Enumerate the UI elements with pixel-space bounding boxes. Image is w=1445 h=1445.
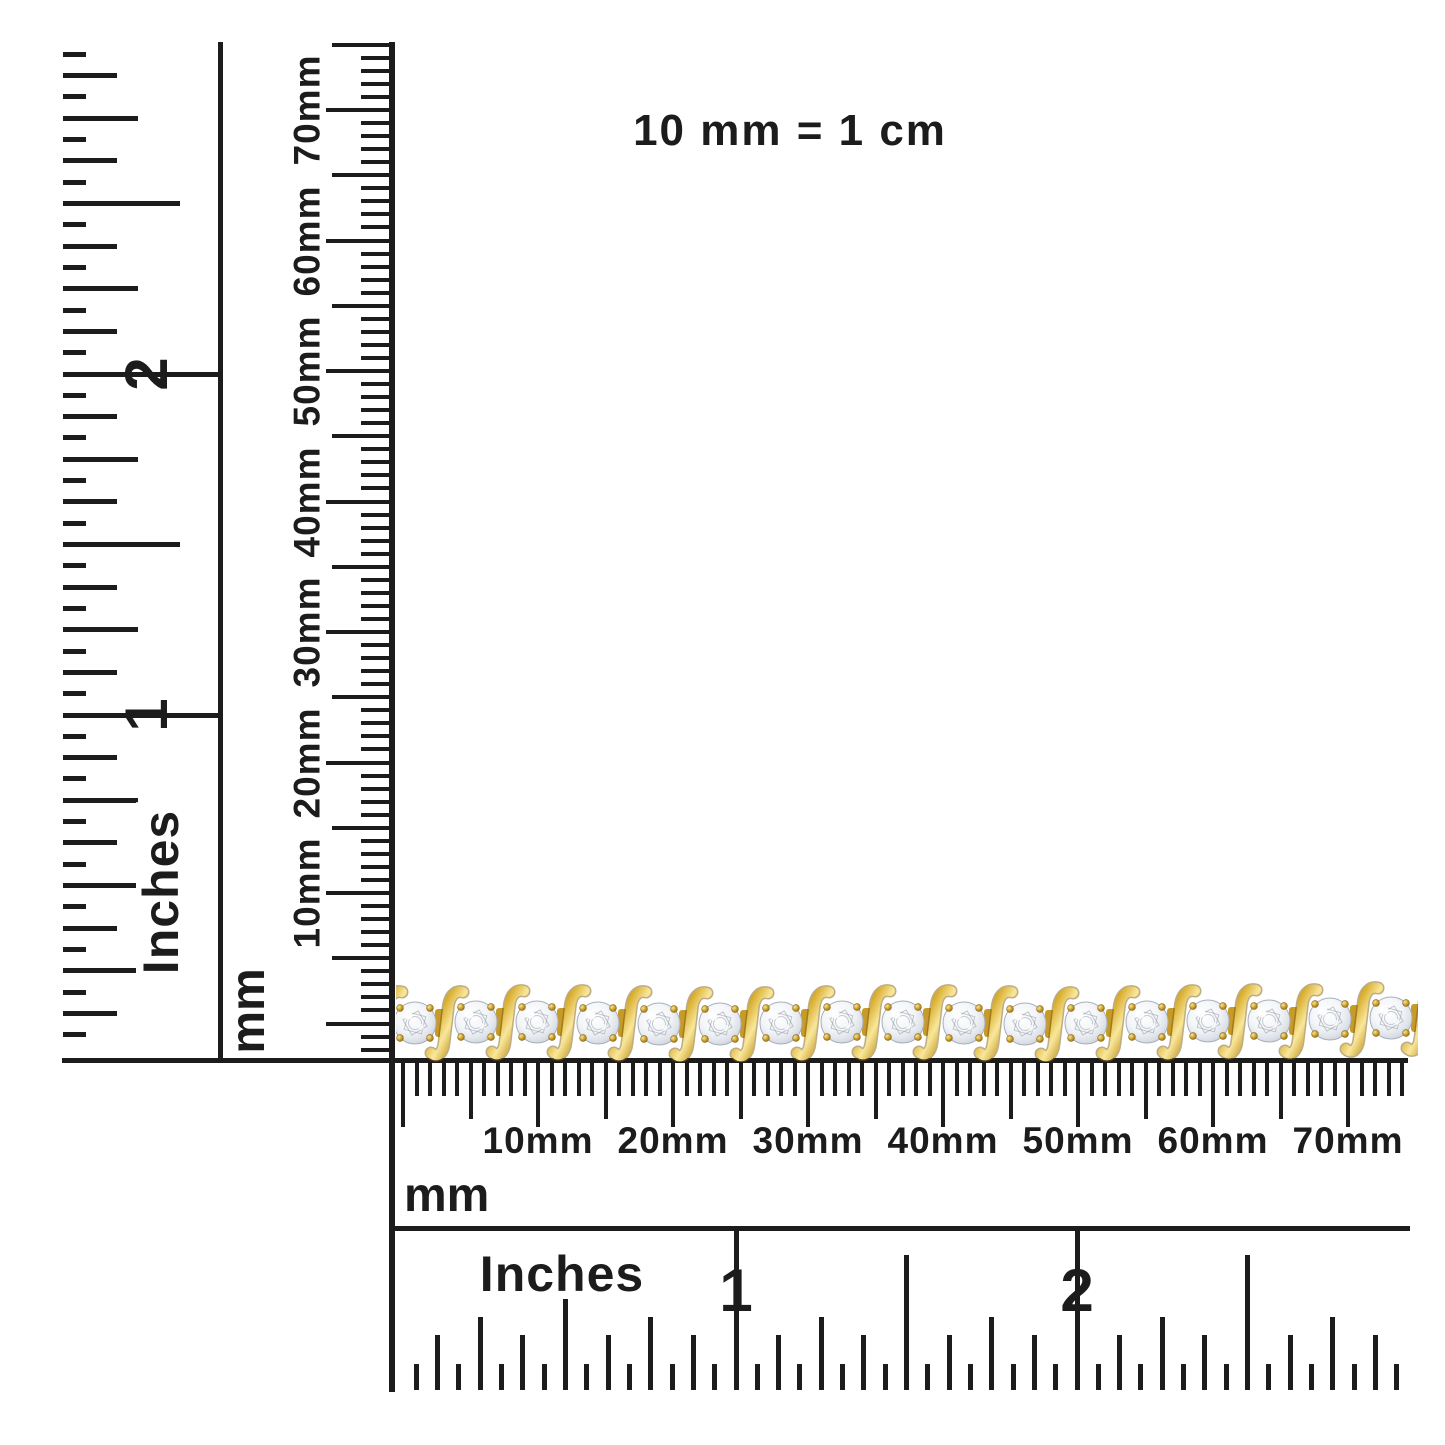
inch-tick bbox=[63, 691, 86, 696]
inch-tick bbox=[63, 649, 86, 654]
inch-number-label: 1 bbox=[117, 698, 177, 731]
scale-note: 10 mm = 1 cm bbox=[633, 109, 947, 153]
mm-tick bbox=[739, 1063, 743, 1119]
mm-tick bbox=[361, 330, 389, 334]
mm-tick bbox=[415, 1063, 419, 1096]
inch-tick bbox=[1053, 1364, 1058, 1390]
mm-tick bbox=[752, 1063, 756, 1096]
inch-tick bbox=[63, 670, 117, 675]
bracelet-link bbox=[1248, 990, 1317, 1054]
inch-tick bbox=[63, 329, 117, 334]
mm-tick bbox=[1117, 1063, 1121, 1096]
inch-tick bbox=[542, 1364, 547, 1390]
mm-tick-label: 50mm bbox=[1023, 1122, 1134, 1159]
mm-tick bbox=[523, 1063, 527, 1096]
mm-tick bbox=[1306, 1063, 1310, 1096]
inch-tick bbox=[63, 180, 86, 185]
mm-tick bbox=[361, 969, 389, 973]
product-measurement-image: 10 mm = 1 cm Inches mm mm Inches 1210mm2… bbox=[0, 0, 1445, 1445]
mm-tick bbox=[860, 1063, 864, 1096]
bracelet-link bbox=[1065, 992, 1134, 1056]
mm-tick bbox=[361, 486, 389, 490]
mm-tick bbox=[1157, 1063, 1161, 1096]
mm-tick bbox=[1265, 1063, 1269, 1096]
mm-tick bbox=[1144, 1063, 1148, 1119]
inch-tick bbox=[63, 990, 86, 995]
mm-tick bbox=[361, 930, 389, 934]
inch-tick bbox=[606, 1335, 611, 1390]
mm-tick bbox=[401, 1063, 405, 1127]
inch-tick bbox=[627, 1364, 632, 1390]
mm-tick bbox=[496, 1063, 500, 1096]
inch-tick bbox=[63, 116, 138, 121]
mm-tick bbox=[1360, 1063, 1364, 1096]
mm-tick-label: 60mm bbox=[1158, 1122, 1269, 1159]
mm-tick bbox=[361, 813, 389, 817]
mm-tick bbox=[1346, 1063, 1350, 1127]
mm-tick-label: 40mm bbox=[888, 1122, 999, 1159]
inch-tick bbox=[63, 478, 86, 483]
inch-tick bbox=[776, 1335, 781, 1390]
mm-tick bbox=[1279, 1063, 1283, 1119]
mm-tick bbox=[361, 617, 389, 621]
mm-tick bbox=[941, 1063, 945, 1127]
bracelet-link bbox=[638, 993, 707, 1057]
inch-tick bbox=[63, 393, 86, 398]
mm-tick bbox=[361, 186, 389, 190]
mm-tick bbox=[847, 1063, 851, 1096]
inch-tick bbox=[63, 755, 117, 760]
mm-tick bbox=[1171, 1063, 1175, 1096]
mm-tick bbox=[482, 1063, 486, 1096]
mm-tick bbox=[914, 1063, 918, 1096]
bracelet-link bbox=[1126, 991, 1195, 1055]
inch-tick bbox=[63, 606, 86, 611]
inch-tick bbox=[819, 1317, 824, 1390]
mm-tick bbox=[361, 917, 389, 921]
inch-tick bbox=[755, 1364, 760, 1390]
mm-tick bbox=[361, 56, 389, 60]
mm-tick bbox=[326, 1022, 389, 1026]
inch-tick bbox=[499, 1364, 504, 1390]
mm-tick bbox=[332, 565, 389, 569]
inch-tick bbox=[63, 563, 86, 568]
mm-tick bbox=[361, 473, 389, 477]
inch-number-label: 2 bbox=[1060, 1261, 1093, 1321]
inch-tick bbox=[63, 1011, 117, 1016]
mm-tick bbox=[361, 1035, 389, 1039]
mm-tick bbox=[332, 43, 389, 47]
mm-tick bbox=[361, 721, 389, 725]
vertical-frame-line bbox=[389, 42, 395, 1392]
inch-tick bbox=[478, 1317, 483, 1390]
mm-tick bbox=[1103, 1063, 1107, 1096]
mm-tick bbox=[685, 1063, 689, 1096]
inch-tick bbox=[63, 862, 86, 867]
bracelet-link bbox=[1370, 987, 1418, 1051]
mm-tick bbox=[361, 656, 389, 660]
mm-tick bbox=[1036, 1063, 1040, 1096]
inch-tick bbox=[63, 840, 117, 845]
left-inches-ruler-unit-label: Inches bbox=[136, 802, 186, 982]
bracelet-link bbox=[699, 993, 768, 1057]
mm-tick bbox=[361, 225, 389, 229]
inch-tick bbox=[63, 1032, 86, 1037]
inch-tick bbox=[584, 1364, 589, 1390]
mm-tick bbox=[712, 1063, 716, 1096]
inch-tick bbox=[63, 201, 180, 206]
mm-tick bbox=[604, 1063, 608, 1119]
mm-tick bbox=[887, 1063, 891, 1096]
mm-tick bbox=[644, 1063, 648, 1096]
mm-tick-label: 70mm bbox=[1293, 1122, 1404, 1159]
mm-tick bbox=[332, 956, 389, 960]
inch-tick bbox=[883, 1364, 888, 1390]
mm-tick bbox=[326, 891, 389, 895]
bracelet-link bbox=[455, 991, 524, 1055]
mm-tick bbox=[361, 147, 389, 151]
mm-tick-label: 20mm bbox=[289, 707, 326, 818]
inch-tick bbox=[1245, 1255, 1250, 1390]
bracelet-link bbox=[943, 992, 1012, 1056]
inch-tick bbox=[1138, 1364, 1143, 1390]
inch-tick bbox=[691, 1335, 696, 1390]
inch-tick bbox=[1202, 1335, 1207, 1390]
mm-tick bbox=[332, 826, 389, 830]
bracelet-link bbox=[1309, 988, 1378, 1052]
mm-tick bbox=[361, 1048, 389, 1052]
mm-tick bbox=[326, 239, 389, 243]
mm-tick bbox=[793, 1063, 797, 1096]
mm-tick bbox=[361, 852, 389, 856]
inch-tick bbox=[1032, 1335, 1037, 1390]
mm-tick bbox=[361, 212, 389, 216]
mm-tick bbox=[779, 1063, 783, 1096]
inch-tick bbox=[63, 137, 86, 142]
mm-tick bbox=[1373, 1063, 1377, 1096]
inch-tick bbox=[925, 1364, 930, 1390]
mm-tick bbox=[955, 1063, 959, 1096]
mm-tick bbox=[361, 252, 389, 256]
mm-tick bbox=[1198, 1063, 1202, 1096]
inch-tick bbox=[63, 52, 86, 57]
inch-tick bbox=[840, 1364, 845, 1390]
inch-tick bbox=[63, 926, 117, 931]
mm-tick bbox=[326, 761, 389, 765]
mm-tick bbox=[361, 800, 389, 804]
inch-tick bbox=[63, 585, 117, 590]
mm-tick bbox=[1225, 1063, 1229, 1096]
mm-tick bbox=[1400, 1063, 1404, 1096]
bracelet-link bbox=[516, 991, 585, 1055]
mm-tick bbox=[442, 1063, 446, 1096]
inch-tick bbox=[670, 1364, 675, 1390]
mm-tick bbox=[361, 734, 389, 738]
inch-tick bbox=[797, 1364, 802, 1390]
inch-tick bbox=[63, 947, 86, 952]
mm-tick bbox=[536, 1063, 540, 1127]
bracelet-link bbox=[821, 991, 890, 1055]
bottom-inches-ruler-unit-label: Inches bbox=[472, 1249, 652, 1299]
mm-tick bbox=[361, 343, 389, 347]
inch-tick bbox=[63, 734, 86, 739]
mm-tick bbox=[725, 1063, 729, 1096]
mm-tick bbox=[332, 173, 389, 177]
mm-tick bbox=[326, 500, 389, 504]
diamond-bracelet-photo bbox=[396, 977, 1418, 1062]
mm-tick-label: 50mm bbox=[289, 316, 326, 427]
inch-tick bbox=[63, 435, 86, 440]
mm-tick bbox=[1387, 1063, 1391, 1096]
bracelet-link bbox=[1004, 993, 1073, 1057]
mm-tick bbox=[928, 1063, 932, 1096]
mm-tick bbox=[698, 1063, 702, 1096]
mm-tick bbox=[361, 460, 389, 464]
mm-tick bbox=[577, 1063, 581, 1096]
mm-tick bbox=[455, 1063, 459, 1096]
mm-tick bbox=[361, 265, 389, 269]
mm-tick bbox=[1076, 1063, 1080, 1127]
mm-tick bbox=[995, 1063, 999, 1096]
inch-tick bbox=[1309, 1364, 1314, 1390]
inch-tick bbox=[63, 94, 86, 99]
mm-tick bbox=[361, 121, 389, 125]
mm-tick bbox=[361, 643, 389, 647]
mm-tick bbox=[332, 695, 389, 699]
mm-tick bbox=[361, 552, 389, 556]
mm-tick bbox=[361, 69, 389, 73]
mm-tick bbox=[361, 513, 389, 517]
mm-tick bbox=[361, 539, 389, 543]
mm-tick bbox=[361, 591, 389, 595]
mm-tick bbox=[361, 447, 389, 451]
mm-tick bbox=[361, 356, 389, 360]
mm-tick bbox=[590, 1063, 594, 1096]
mm-tick bbox=[332, 304, 389, 308]
inch-tick bbox=[1096, 1364, 1101, 1390]
inch-tick bbox=[1330, 1317, 1335, 1390]
mm-tick-label: 20mm bbox=[618, 1122, 729, 1159]
mm-tick bbox=[1090, 1063, 1094, 1096]
mm-tick bbox=[766, 1063, 770, 1096]
mm-tick bbox=[968, 1063, 972, 1096]
inch-tick bbox=[1011, 1364, 1016, 1390]
mm-tick bbox=[509, 1063, 513, 1096]
mm-tick bbox=[361, 787, 389, 791]
inch-tick bbox=[63, 542, 180, 547]
mm-tick bbox=[361, 134, 389, 138]
inch-tick bbox=[63, 73, 117, 78]
mm-tick bbox=[361, 82, 389, 86]
mm-tick bbox=[361, 578, 389, 582]
mm-tick bbox=[658, 1063, 662, 1096]
inch-tick bbox=[1224, 1364, 1229, 1390]
mm-tick bbox=[361, 382, 389, 386]
mm-tick bbox=[361, 199, 389, 203]
mm-tick bbox=[820, 1063, 824, 1096]
bracelet-link bbox=[577, 992, 646, 1056]
mm-tick-label: 70mm bbox=[289, 55, 326, 166]
mm-tick bbox=[1252, 1063, 1256, 1096]
mm-tick bbox=[982, 1063, 986, 1096]
inch-tick bbox=[520, 1335, 525, 1390]
mm-tick bbox=[361, 317, 389, 321]
mm-tick bbox=[1022, 1063, 1026, 1096]
inch-tick bbox=[63, 414, 117, 419]
inch-tick bbox=[904, 1255, 909, 1390]
inch-tick bbox=[861, 1335, 866, 1390]
mm-tick bbox=[1238, 1063, 1242, 1096]
inch-tick bbox=[63, 222, 86, 227]
mm-tick bbox=[361, 669, 389, 673]
mm-tick-label: 30mm bbox=[753, 1122, 864, 1159]
mm-tick-label: 60mm bbox=[289, 185, 326, 296]
mm-tick bbox=[361, 904, 389, 908]
mm-tick bbox=[874, 1063, 878, 1119]
mm-tick bbox=[631, 1063, 635, 1096]
inch-tick bbox=[63, 819, 86, 824]
mm-tick bbox=[361, 982, 389, 986]
mm-tick bbox=[326, 630, 389, 634]
mm-tick bbox=[1292, 1063, 1296, 1096]
mm-tick bbox=[361, 774, 389, 778]
inch-tick bbox=[1160, 1317, 1165, 1390]
mm-tick bbox=[469, 1063, 473, 1119]
inch-tick bbox=[648, 1317, 653, 1390]
mm-tick bbox=[361, 95, 389, 99]
inch-tick bbox=[63, 286, 138, 291]
inch-tick bbox=[1394, 1364, 1399, 1390]
mm-tick bbox=[326, 369, 389, 373]
mm-tick bbox=[361, 708, 389, 712]
mm-tick bbox=[361, 747, 389, 751]
left-mm-ruler-unit-label: mm bbox=[225, 968, 273, 1053]
mm-tick bbox=[361, 1008, 389, 1012]
inch-tick bbox=[947, 1335, 952, 1390]
inch-tick bbox=[63, 627, 138, 632]
inch-tick bbox=[63, 968, 138, 973]
mm-tick bbox=[563, 1063, 567, 1096]
inch-tick bbox=[989, 1317, 994, 1390]
mm-tick bbox=[332, 434, 389, 438]
mm-tick bbox=[428, 1063, 432, 1096]
inch-tick bbox=[1373, 1335, 1378, 1390]
inch-tick bbox=[414, 1364, 419, 1390]
bottom-inches-ruler-spine bbox=[389, 1226, 1410, 1231]
inch-tick bbox=[1181, 1364, 1186, 1390]
bracelet-link bbox=[760, 992, 829, 1056]
mm-tick bbox=[326, 108, 389, 112]
mm-tick bbox=[671, 1063, 675, 1127]
mm-tick-label: 10mm bbox=[289, 838, 326, 949]
mm-tick bbox=[361, 995, 389, 999]
inch-tick bbox=[63, 798, 138, 803]
mm-tick bbox=[1333, 1063, 1337, 1096]
mm-tick-label: 40mm bbox=[289, 446, 326, 557]
mm-tick bbox=[361, 604, 389, 608]
inch-tick bbox=[435, 1335, 440, 1390]
mm-tick bbox=[361, 421, 389, 425]
mm-tick bbox=[361, 408, 389, 412]
inch-number-label: 1 bbox=[719, 1261, 752, 1321]
mm-tick bbox=[1009, 1063, 1013, 1119]
mm-tick bbox=[550, 1063, 554, 1096]
inch-tick bbox=[63, 499, 117, 504]
inch-tick bbox=[63, 457, 138, 462]
inch-tick bbox=[1266, 1364, 1271, 1390]
mm-tick bbox=[1319, 1063, 1323, 1096]
mm-tick bbox=[361, 839, 389, 843]
mm-tick bbox=[361, 291, 389, 295]
inch-tick bbox=[63, 244, 117, 249]
inch-tick bbox=[63, 158, 117, 163]
left-inches-ruler-spine bbox=[218, 42, 223, 1063]
inch-tick bbox=[1117, 1335, 1122, 1390]
mm-tick bbox=[1063, 1063, 1067, 1096]
mm-tick bbox=[361, 160, 389, 164]
inch-tick bbox=[1352, 1364, 1357, 1390]
inch-tick bbox=[456, 1364, 461, 1390]
mm-tick bbox=[617, 1063, 621, 1096]
inch-tick bbox=[63, 904, 86, 909]
bracelet-link bbox=[1187, 990, 1256, 1054]
mm-tick bbox=[361, 865, 389, 869]
inch-tick bbox=[63, 350, 86, 355]
inch-tick bbox=[712, 1364, 717, 1390]
bottom-mm-ruler-unit-label: mm bbox=[404, 1172, 489, 1220]
mm-tick bbox=[1184, 1063, 1188, 1096]
mm-tick bbox=[361, 395, 389, 399]
mm-tick bbox=[1211, 1063, 1215, 1127]
mm-tick bbox=[361, 278, 389, 282]
inch-tick bbox=[63, 308, 86, 313]
inch-tick bbox=[1288, 1335, 1293, 1390]
inch-tick bbox=[968, 1364, 973, 1390]
mm-tick bbox=[1130, 1063, 1134, 1096]
bracelet-link bbox=[396, 992, 463, 1056]
mm-tick-label: 10mm bbox=[483, 1122, 594, 1159]
mm-tick bbox=[1049, 1063, 1053, 1096]
mm-tick-label: 30mm bbox=[289, 577, 326, 688]
inch-tick bbox=[63, 521, 86, 526]
mm-tick bbox=[901, 1063, 905, 1096]
mm-tick bbox=[806, 1063, 810, 1127]
mm-tick bbox=[361, 682, 389, 686]
mm-tick bbox=[361, 878, 389, 882]
inch-number-label: 2 bbox=[117, 357, 177, 390]
inch-tick bbox=[63, 265, 86, 270]
bracelet-link bbox=[882, 991, 951, 1055]
mm-tick bbox=[833, 1063, 837, 1096]
mm-tick bbox=[361, 526, 389, 530]
mm-tick bbox=[361, 943, 389, 947]
inch-tick bbox=[63, 776, 86, 781]
